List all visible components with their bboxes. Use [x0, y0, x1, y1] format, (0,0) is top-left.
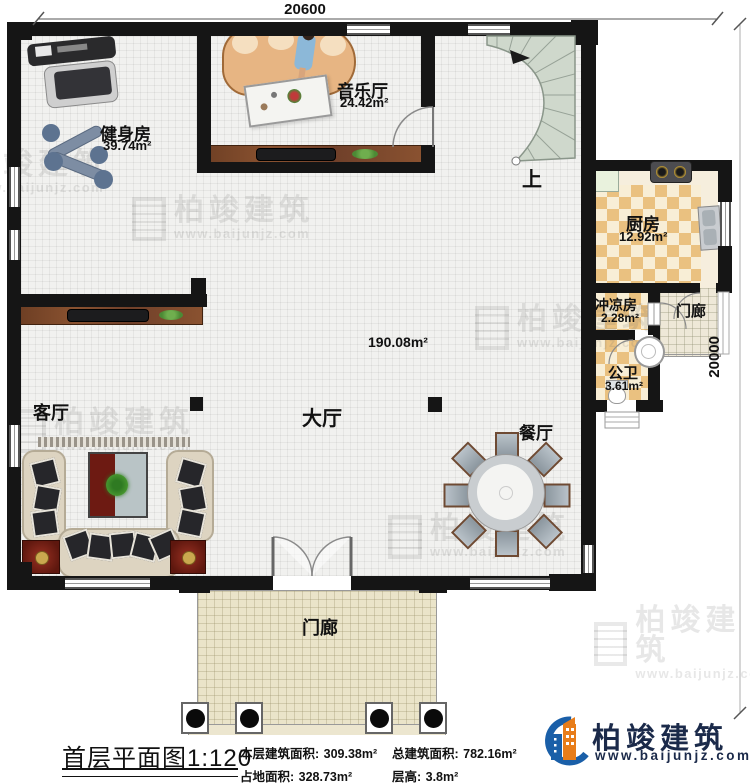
plant [159, 310, 183, 320]
sofa-cushion [30, 508, 59, 537]
treadmill-screen [35, 45, 52, 57]
stat-value: 782.16m² [463, 747, 517, 761]
stat-floor-area: 本层建筑面积: 309.38m² [240, 743, 392, 763]
dining-set [445, 432, 565, 552]
wall-kitchen-bottom [581, 283, 700, 293]
dumbbell-plate [42, 124, 60, 142]
end-table-right [170, 540, 206, 574]
porch-column [181, 702, 209, 734]
wall-shower-toilet-left [581, 330, 635, 340]
stat-value: 309.38m² [324, 747, 378, 761]
title-underline [62, 768, 238, 777]
dumbbell-plate [44, 152, 63, 171]
room-area-toilet: 3.61m² [605, 379, 643, 393]
room-area-shower: 2.28m² [601, 311, 639, 325]
footer-bar: 首层平面图1:120 本层建筑面积: 309.38m² 总建筑面积: 782.1… [0, 735, 750, 784]
plant [352, 149, 378, 159]
stat-label: 层高: [392, 770, 421, 784]
tv-cabinet-gym [20, 306, 203, 325]
room-area-gym: 39.74m² [103, 138, 151, 153]
end-table-medallion [35, 551, 49, 565]
sofa-cushion [176, 508, 207, 539]
dimension-top: 20600 [270, 1, 340, 18]
wall-music-bottom [197, 162, 435, 173]
flower-decoration [286, 88, 302, 104]
watermark-brand: 柏竣建筑 [174, 196, 314, 226]
sink-basin [702, 210, 716, 227]
room-label-hall: 大厅 [302, 402, 342, 431]
stat-floor-height: 层高: 3.8m² [392, 766, 540, 784]
table-item [271, 91, 278, 98]
brand-url: www.baijunjz.com [595, 748, 750, 763]
wall-shower-porch-upper [648, 293, 660, 305]
burner [674, 166, 686, 178]
brand-logo-icon [541, 712, 589, 774]
porch-column-dot [186, 709, 205, 728]
sofa-right [166, 450, 214, 542]
watermark-logo-icon [388, 515, 422, 559]
dining-chair [495, 530, 519, 557]
dumbbell-plate [94, 170, 113, 189]
wall-gym-bottom [7, 294, 207, 307]
porch-pier-right [419, 576, 447, 593]
wall-right-main [581, 22, 596, 590]
floor-plan-canvas: 柏竣建筑 www.baijunjz.com 柏竣建筑 www.baijunjz.… [0, 0, 750, 784]
toilet-exterior-steps [605, 412, 639, 428]
window [347, 24, 390, 35]
window [470, 578, 550, 589]
watermark: 柏竣建筑 www.baijunjz.com [594, 606, 750, 681]
wall-music-right-upper [421, 36, 435, 107]
room-label-living: 客厅 [33, 399, 69, 425]
wall-kitchen-bottom-stub [716, 283, 732, 293]
burner [656, 166, 668, 178]
porch-column-dot [370, 709, 389, 728]
porch-column [419, 702, 447, 734]
sofa-bottom [58, 528, 180, 578]
end-table-medallion [182, 551, 196, 565]
watermark: 柏竣建筑 www.baijunjz.com [132, 196, 314, 241]
window [720, 202, 731, 246]
wall-music-right-lower [421, 145, 435, 173]
wall-kitchen-right-upper [718, 160, 732, 202]
front-porch-floor [197, 590, 437, 728]
stairs-up-label: 上 [522, 163, 542, 192]
window [9, 230, 20, 260]
dimension-right: 20000 [706, 336, 723, 378]
room-area-music: 24.42m² [340, 95, 388, 110]
stat-value: 3.8m² [426, 770, 459, 784]
stat-value: 328.73m² [299, 770, 353, 784]
porch-pier-left [179, 576, 210, 593]
sofa-cushion [320, 34, 346, 56]
room-area-kitchen: 12.92m² [619, 229, 667, 244]
stove [650, 161, 692, 183]
window [468, 24, 510, 35]
room-label-front-porch: 门廊 [302, 614, 338, 640]
watermark-brand: 柏竣建筑 [54, 408, 194, 438]
sofa-cushion [29, 457, 61, 489]
window [583, 545, 594, 573]
stat-label: 占地面积: [240, 770, 294, 784]
coffee-table [88, 452, 148, 518]
treadmill-belt [54, 66, 113, 100]
stat-total-area: 总建筑面积: 782.16m² [392, 743, 540, 763]
window [9, 425, 20, 467]
dining-chair [544, 484, 571, 508]
stat-label: 总建筑面积: [392, 747, 459, 761]
wall-corner-br [549, 574, 596, 591]
room-label-side-porch: 门廊 [676, 300, 706, 321]
porch-column-dot [240, 709, 259, 728]
porch-column-dot [424, 709, 443, 728]
window [9, 167, 20, 207]
hall-column-right [428, 397, 442, 412]
wall-corner-bl [7, 562, 32, 590]
porch-column [235, 702, 263, 734]
room-label-dining: 餐厅 [519, 419, 553, 444]
wall-corner-tr [571, 20, 598, 45]
kitchen-sink [697, 205, 722, 250]
dining-table-center [499, 486, 513, 500]
treadmill [27, 36, 122, 113]
tv [67, 309, 149, 322]
room-area-hall: 190.08m² [368, 334, 428, 350]
table-item [260, 103, 268, 111]
sink-basin [703, 229, 717, 246]
basin-bowl [641, 344, 656, 359]
bathroom-basin [634, 336, 665, 368]
watermark-url: www.baijunjz.com [635, 666, 750, 681]
wall-gym-music-divider [197, 36, 211, 172]
tv [256, 148, 336, 161]
porch-column [365, 702, 393, 734]
window [65, 578, 150, 589]
sofa-left [22, 450, 66, 542]
watermark-logo-icon [475, 306, 509, 350]
stat-land-area: 占地面积: 328.73m² [240, 766, 392, 784]
watermark-url: www.baijunjz.com [174, 226, 314, 241]
stat-label: 本层建筑面积: [240, 747, 319, 761]
sofa-back-texture [38, 437, 190, 447]
stats-block: 本层建筑面积: 309.38m² 总建筑面积: 782.16m² 占地面积: 3… [240, 743, 540, 784]
plant [106, 474, 128, 496]
wall-corner-tl [7, 22, 32, 40]
wall-toilet-bottom-right [636, 400, 663, 412]
watermark-brand: 柏竣建筑 [635, 606, 750, 666]
watermark-logo-icon [594, 622, 627, 666]
hall-column-left [190, 397, 203, 411]
watermark-logo-icon [132, 197, 166, 241]
